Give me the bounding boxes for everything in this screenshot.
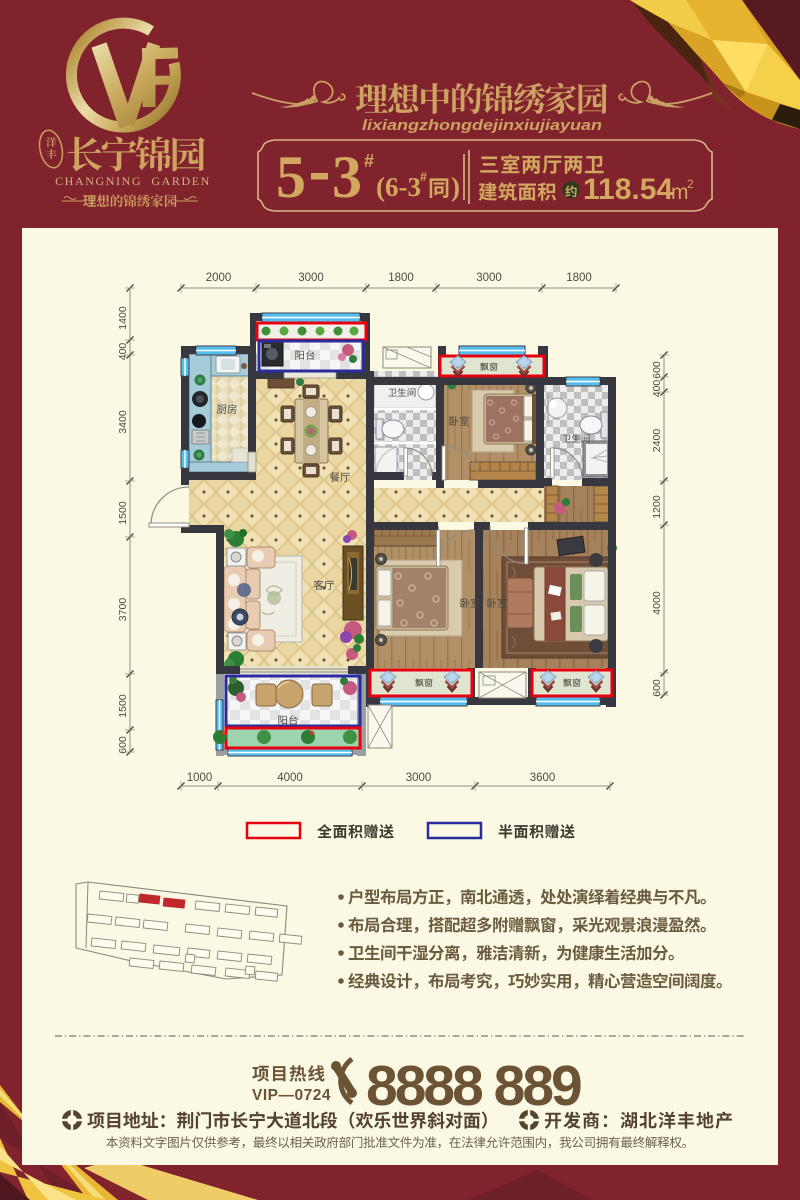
svg-text:118.54: 118.54	[583, 173, 673, 206]
svg-text:600: 600	[651, 361, 663, 379]
svg-text:3000: 3000	[406, 772, 432, 784]
svg-text:1800: 1800	[388, 272, 414, 284]
svg-text:600: 600	[651, 679, 663, 697]
svg-text:VIP—0724: VIP—0724	[252, 1087, 331, 1104]
svg-text:3700: 3700	[117, 598, 129, 622]
svg-text:1500: 1500	[117, 501, 129, 525]
svg-text:3600: 3600	[530, 772, 556, 784]
svg-text:3000: 3000	[298, 272, 324, 284]
svg-text:(6-3: (6-3	[376, 172, 421, 202]
svg-text:3400: 3400	[117, 410, 129, 434]
svg-text:8888 889: 8888 889	[366, 1054, 581, 1118]
svg-text:400: 400	[117, 343, 129, 361]
svg-text:): )	[451, 172, 460, 202]
svg-text:1800: 1800	[566, 272, 592, 284]
svg-text:m: m	[671, 181, 689, 204]
svg-text:2000: 2000	[206, 272, 232, 284]
svg-text:4000: 4000	[651, 591, 663, 615]
svg-text:#: #	[364, 151, 374, 171]
svg-text:4000: 4000	[277, 772, 303, 784]
svg-text:CHANGNING GARDEN: CHANGNING GARDEN	[55, 174, 211, 188]
svg-text:600: 600	[117, 736, 129, 754]
svg-text:1000: 1000	[187, 772, 213, 784]
svg-text:5: 5	[276, 144, 306, 210]
svg-text:3: 3	[332, 144, 362, 210]
svg-text:#: #	[420, 170, 427, 184]
svg-text:1500: 1500	[117, 694, 129, 718]
svg-text:1200: 1200	[651, 495, 663, 519]
svg-text:lixiangzhongdejinxiujiayuan: lixiangzhongdejinxiujiayuan	[362, 117, 602, 134]
svg-text:1400: 1400	[117, 306, 129, 330]
svg-text:2400: 2400	[651, 429, 663, 453]
svg-text:3000: 3000	[476, 272, 502, 284]
svg-text:2: 2	[687, 177, 694, 191]
svg-text:400: 400	[651, 380, 663, 398]
